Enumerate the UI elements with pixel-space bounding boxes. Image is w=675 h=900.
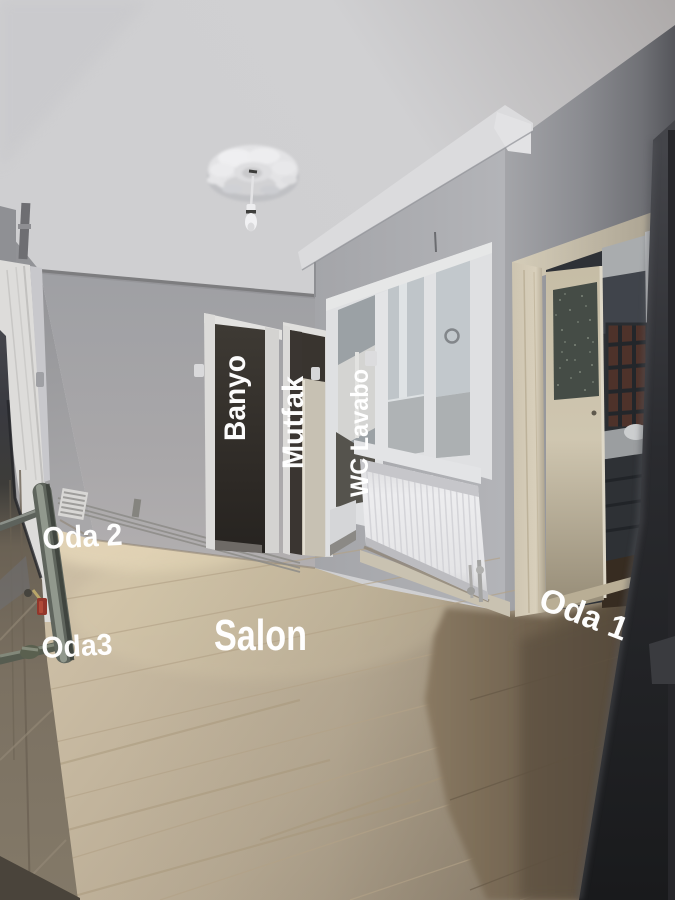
- svg-text:Salon: Salon: [214, 611, 307, 660]
- svg-text:WC Lavabo: WC Lavabo: [346, 369, 374, 497]
- svg-text:Mutfak: Mutfak: [277, 376, 310, 469]
- svg-text:Oda 2: Oda 2: [42, 517, 124, 556]
- svg-text:Oda3: Oda3: [41, 628, 114, 665]
- svg-text:Banyo: Banyo: [219, 355, 252, 441]
